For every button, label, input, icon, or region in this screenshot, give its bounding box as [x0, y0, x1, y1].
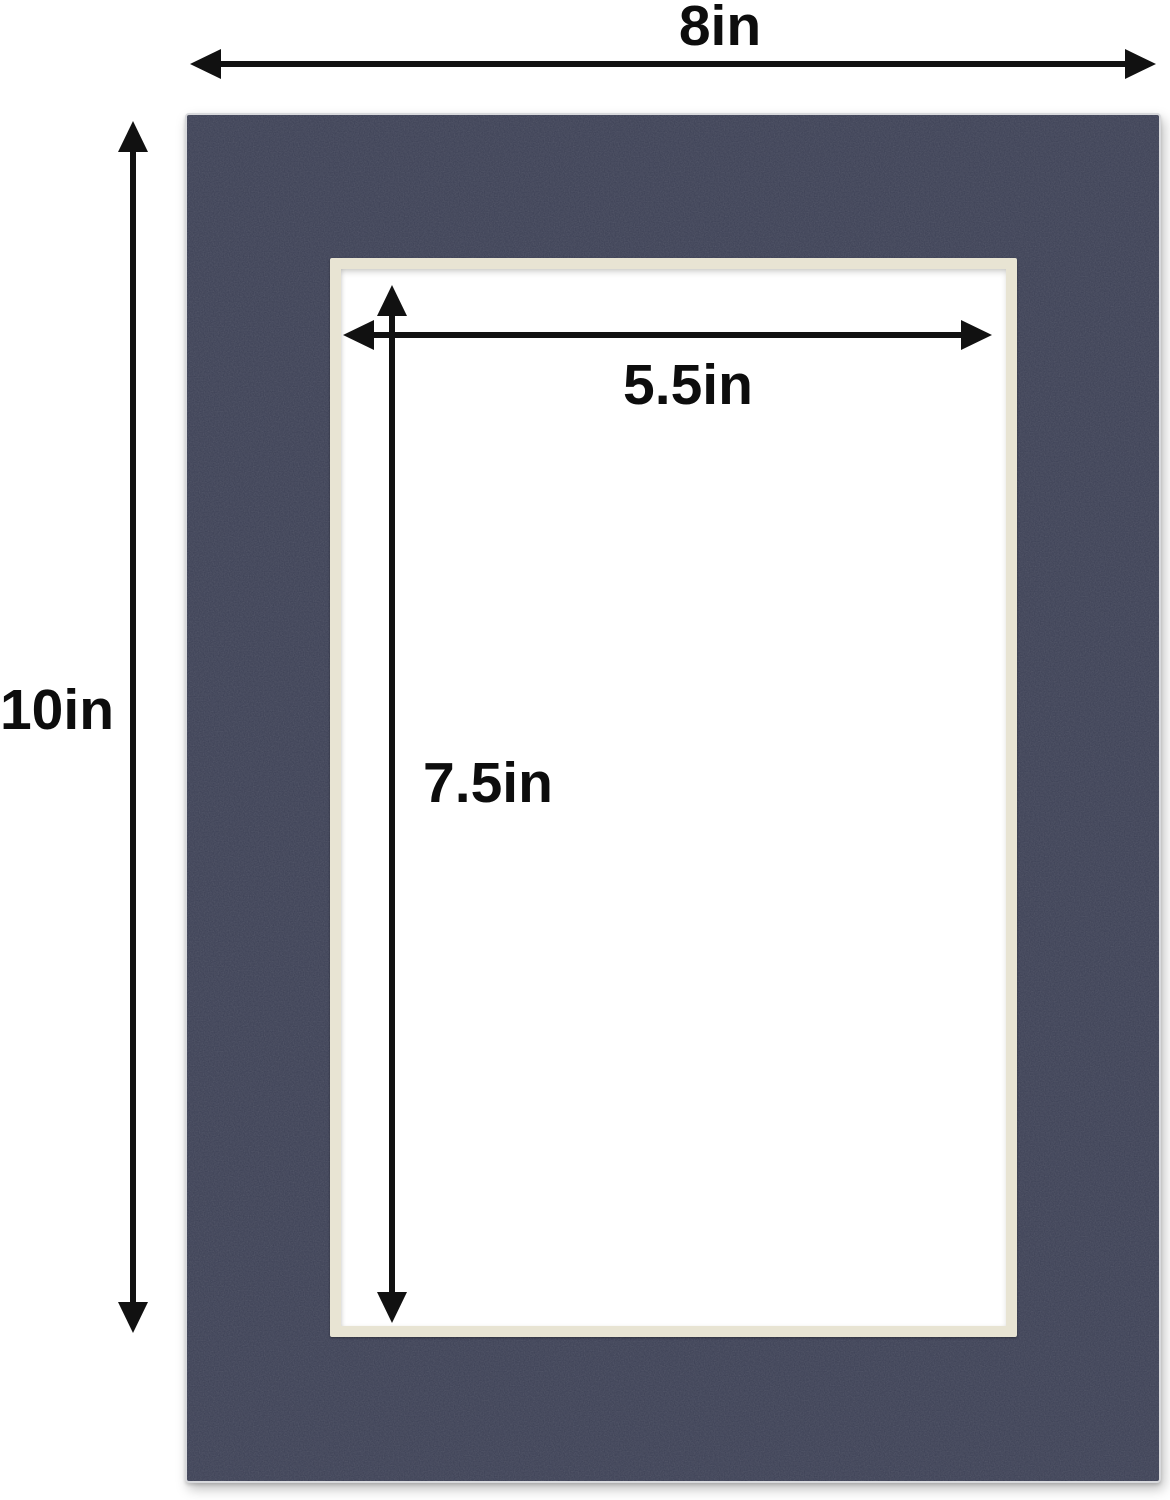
- arrow-shaft: [374, 332, 961, 338]
- outer-width-label: 8in: [620, 0, 820, 53]
- arrowhead-left-icon: [343, 320, 374, 350]
- arrowhead-down-icon: [118, 1302, 148, 1333]
- arrow-shaft: [221, 61, 1125, 67]
- arrowhead-up-icon: [118, 121, 148, 152]
- opening-height-label: 7.5in: [388, 756, 588, 810]
- opening-width-arrow: [343, 320, 992, 350]
- arrowhead-up-icon: [377, 285, 407, 316]
- outer-height-label: 10in: [0, 683, 157, 737]
- product-dimension-diagram: 8in 10in 5.5in 7.5in: [0, 0, 1170, 1500]
- opening-width-label: 5.5in: [588, 358, 788, 412]
- arrowhead-left-icon: [190, 49, 221, 79]
- arrowhead-down-icon: [377, 1292, 407, 1323]
- arrowhead-right-icon: [1125, 49, 1156, 79]
- arrowhead-right-icon: [961, 320, 992, 350]
- outer-width-arrow: [190, 49, 1156, 79]
